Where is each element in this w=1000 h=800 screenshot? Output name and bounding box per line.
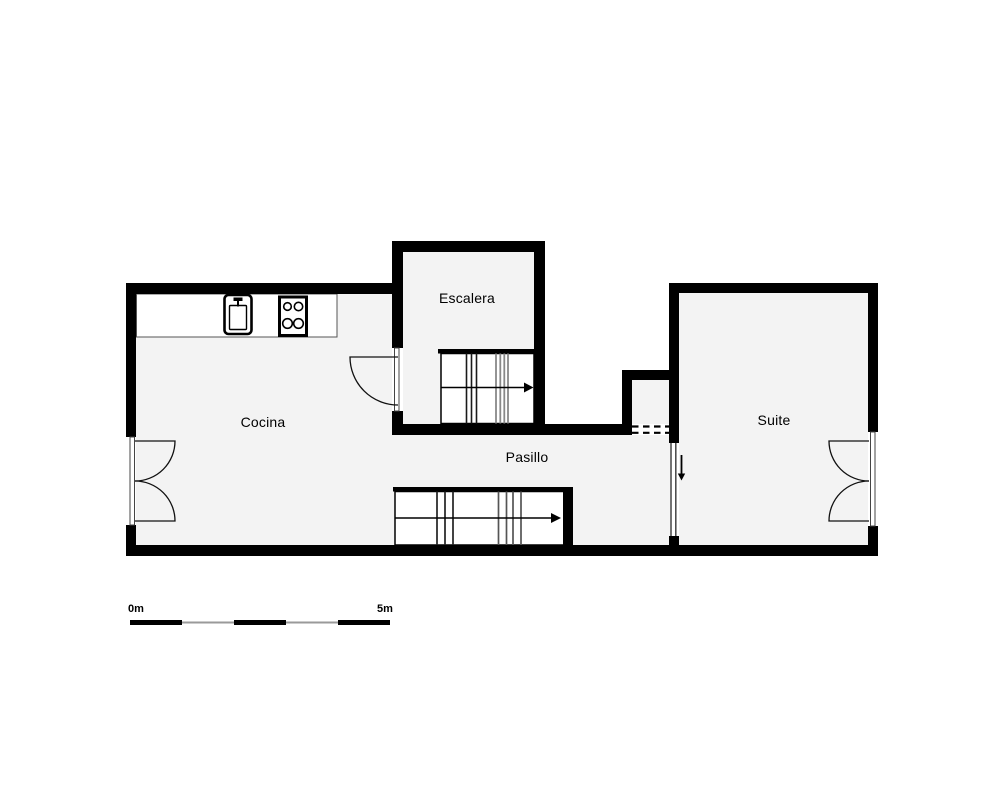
staircase-lower [393,487,567,545]
scale-bar [130,620,390,625]
dashed-opening [632,427,671,433]
stove-icon [280,297,307,336]
staircase-upper [438,349,536,424]
room-label-escalera: Escalera [439,290,495,306]
room-label-suite: Suite [758,412,791,428]
room-label-pasillo: Pasillo [506,449,549,465]
floor-plan: Cocina Escalera Pasillo Suite 0m 5m [0,0,1000,800]
sink-icon [225,295,252,334]
scale-end-label: 5m [377,603,393,615]
partition-pasillo-suite [670,443,677,536]
floor-plan-drawing [0,0,1000,800]
scale-start-label: 0m [128,603,144,615]
room-label-cocina: Cocina [241,414,286,430]
